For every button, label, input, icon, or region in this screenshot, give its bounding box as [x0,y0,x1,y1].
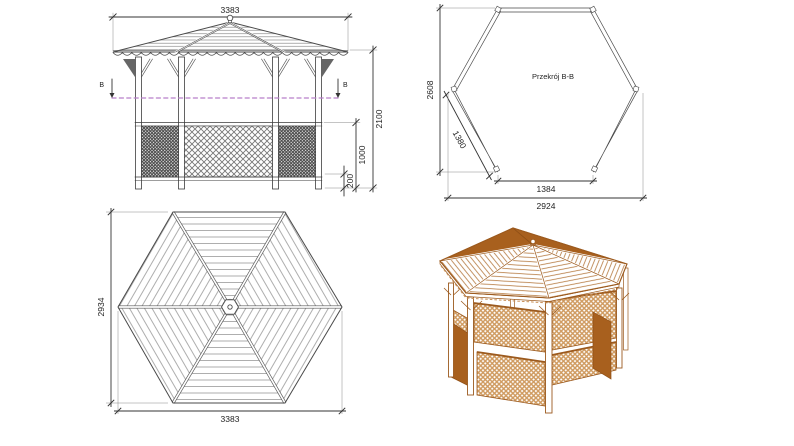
roof-3d [440,228,627,303]
lattice-panel-left [142,126,179,177]
section-marker-right: B [343,82,348,89]
dim-label-1000: 1000 [357,145,367,164]
scalloped-fascia [113,53,348,56]
finial-elevation [227,15,233,23]
dim-label-3383-bottom: 3383 [221,414,240,424]
roof-plan-view: 2934 3383 [96,208,346,424]
side-panel-right-3d [593,312,611,379]
cross-section-view: Przekrój B-B 2608 1380 1384 2924 [425,4,647,211]
dims-elevation-right: 2100 1000 200 [324,46,384,196]
gazebo-drawing: 3383 [0,0,794,446]
lattice-walls-3d [453,291,616,406]
dim-label-1384: 1384 [537,184,556,194]
section-corner-posts [451,6,639,172]
roof-elevation [113,15,348,55]
corner-braces [123,59,334,77]
lattice-panel-right [279,126,316,177]
dim-label-3383-top: 3383 [221,5,240,15]
section-label: Przekrój B-B [532,72,574,81]
front-elevation-view: 3383 [99,5,384,196]
dim-label-200: 200 [345,174,355,188]
dims-section: 2608 1380 1384 2924 [425,4,647,211]
lattice-panel-center [185,126,273,177]
dim-label-2924: 2924 [537,201,556,211]
roof-plan-finial [222,300,239,314]
balustrade-elevation [135,123,322,181]
perspective-view [440,228,629,413]
dim-label-2934: 2934 [96,297,106,316]
technical-drawing-sheet: 3383 [0,0,794,446]
section-marker-left: B [99,82,104,89]
section-walls [452,8,638,172]
dim-label-2608: 2608 [425,80,435,99]
post-3d-back-right [624,268,629,350]
dim-label-2100: 2100 [374,109,384,128]
